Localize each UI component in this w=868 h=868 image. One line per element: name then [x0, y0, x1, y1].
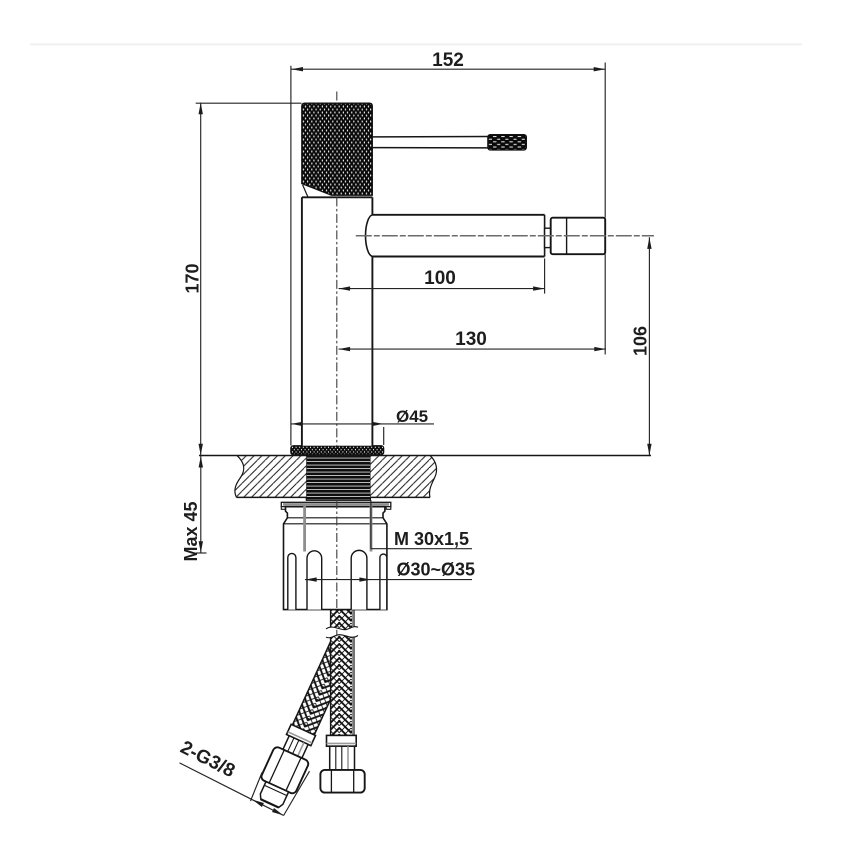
- svg-text:106: 106: [631, 326, 651, 356]
- svg-text:Max 45: Max 45: [181, 501, 201, 561]
- svg-text:100: 100: [424, 268, 456, 289]
- svg-text:130: 130: [455, 329, 487, 350]
- svg-text:152: 152: [432, 50, 464, 71]
- svg-text:Ø30~Ø35: Ø30~Ø35: [397, 560, 476, 580]
- svg-text:M 30x1,5: M 30x1,5: [394, 529, 469, 549]
- svg-text:170: 170: [183, 263, 203, 293]
- svg-text:Ø45: Ø45: [396, 407, 428, 426]
